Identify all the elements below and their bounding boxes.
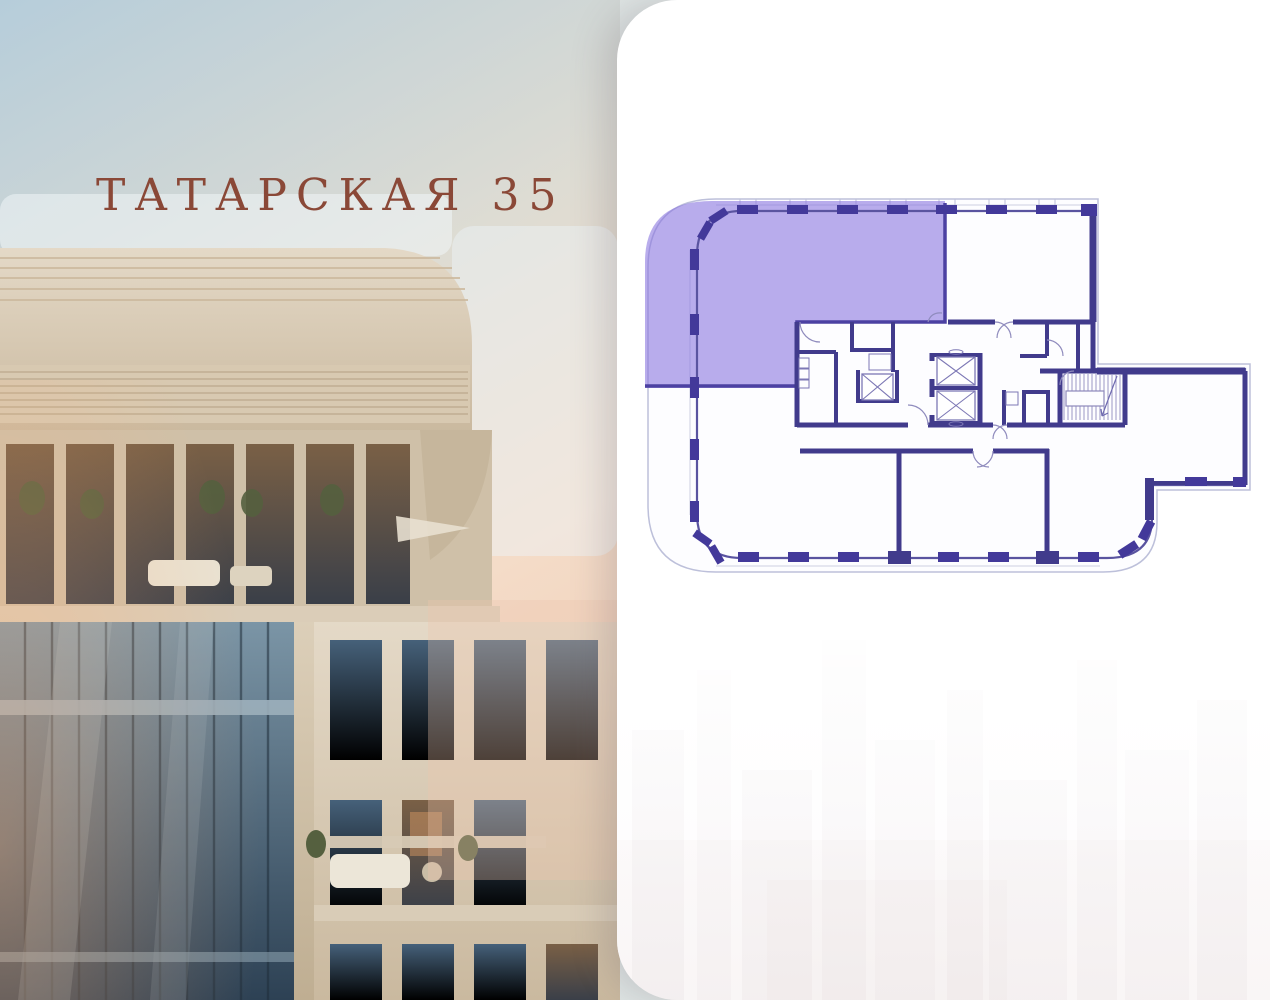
building-photo [0,0,620,1000]
faded-city-background [617,580,1270,1000]
page: { "brand": { "logo_text": "ТАТАРСКАЯ 35"… [0,0,1270,1000]
brand-logo: ТАТАРСКАЯ 35 [96,170,616,221]
floor-plan [628,183,1262,587]
staircase [1064,374,1120,420]
